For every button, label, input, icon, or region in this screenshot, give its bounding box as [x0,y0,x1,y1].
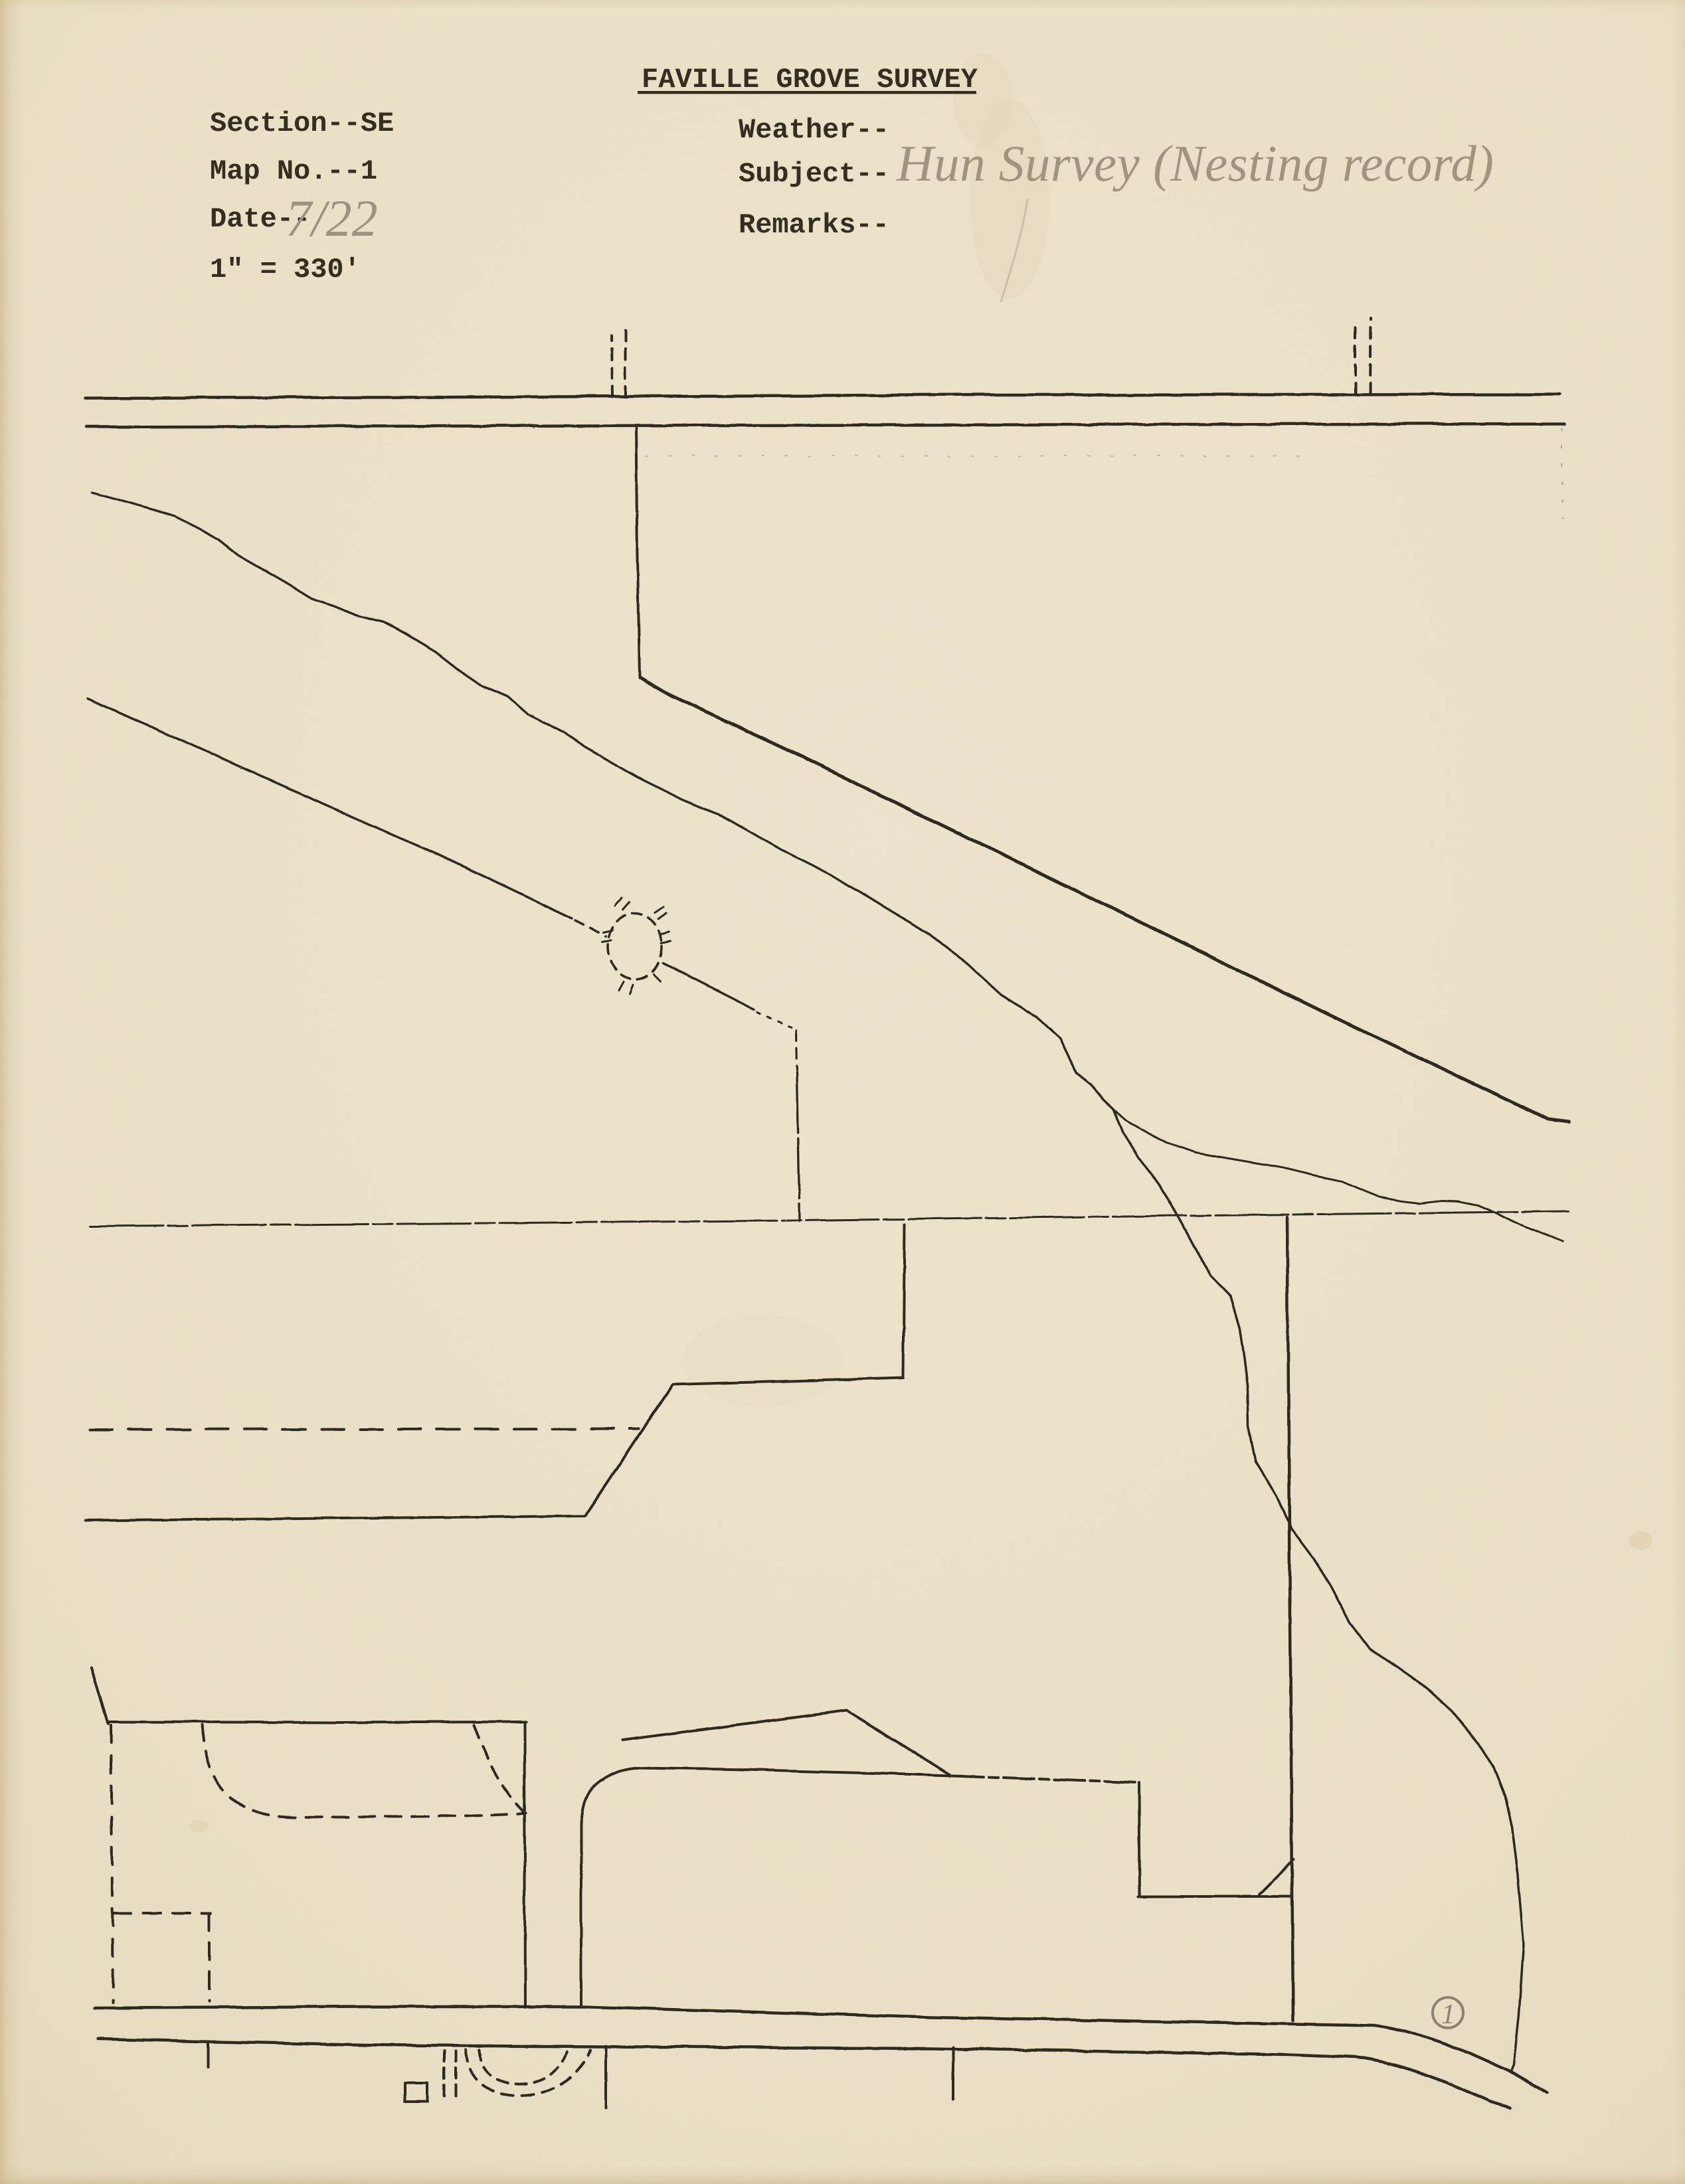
svg-text:FAVILLE GROVE SURVEY: FAVILLE GROVE SURVEY [642,64,978,96]
svg-text:1" = 330': 1" = 330' [210,254,361,286]
svg-text:Remarks--: Remarks-- [739,209,889,241]
svg-text:1: 1 [1441,1999,1455,2030]
svg-text:Hun Survey (Nesting record): Hun Survey (Nesting record) [896,135,1494,192]
svg-text:Subject--: Subject-- [739,158,889,190]
svg-text:Weather--: Weather-- [739,114,889,146]
svg-text:Section--SE: Section--SE [210,108,394,139]
svg-text:7/22: 7/22 [286,189,378,247]
svg-text:Map No.--1: Map No.--1 [210,155,377,187]
